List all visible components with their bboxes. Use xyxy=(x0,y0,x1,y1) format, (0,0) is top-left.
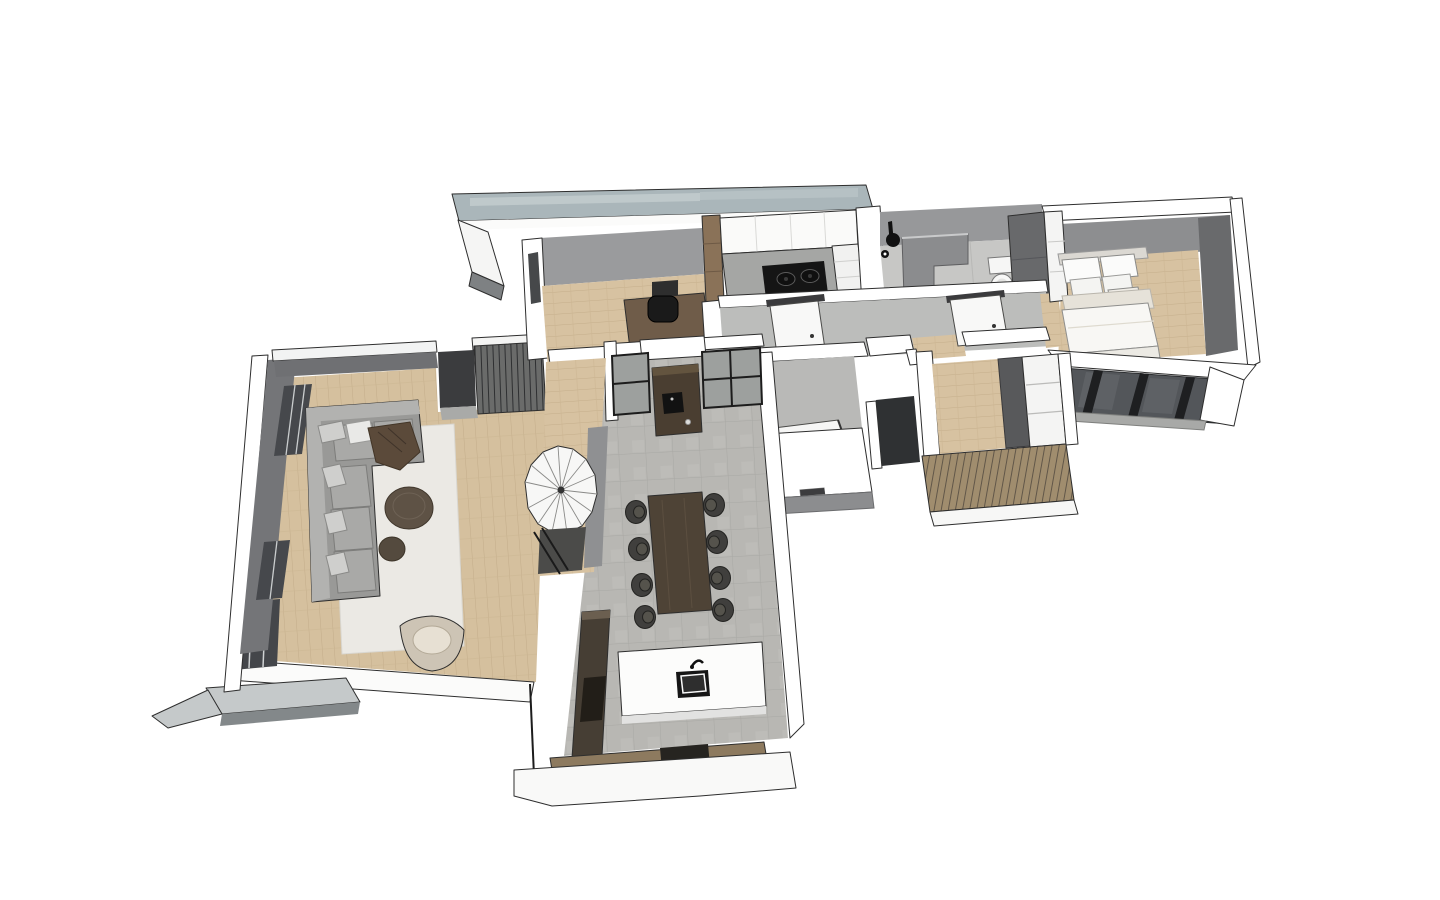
dining-table xyxy=(648,492,712,614)
coffee-table-small xyxy=(379,537,405,561)
coffee-cabinet xyxy=(652,364,702,436)
3d-viewport[interactable] xyxy=(0,0,1440,900)
dark-doorway xyxy=(876,396,920,466)
monitor xyxy=(652,280,678,297)
bedroom xyxy=(1042,197,1260,430)
kitchen-island xyxy=(618,642,766,724)
stair-void-railing xyxy=(530,684,534,776)
walk-in-closet xyxy=(866,349,1078,526)
alcove xyxy=(438,350,476,408)
floorplan-render xyxy=(0,0,1440,900)
coffee-machine xyxy=(662,392,684,414)
living-room xyxy=(152,334,546,728)
office-chair xyxy=(648,296,678,322)
